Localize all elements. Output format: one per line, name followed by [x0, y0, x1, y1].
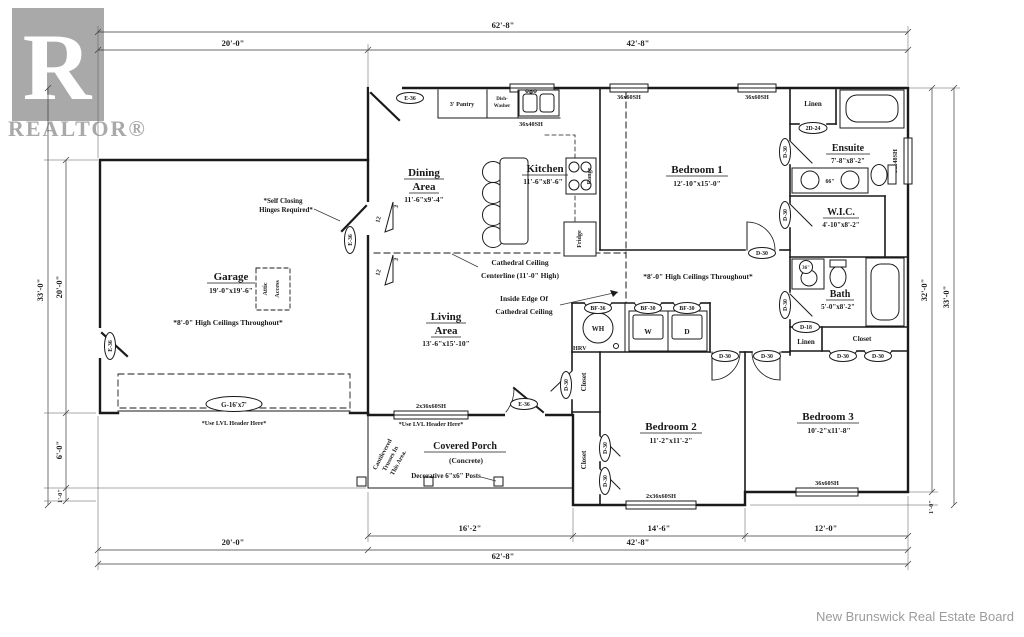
svg-text:E-36: E-36	[108, 340, 114, 352]
cathedral-note2: Centerline (11'-0" High)	[481, 271, 559, 280]
svg-text:BF-30: BF-30	[640, 306, 655, 312]
window-bedroom2	[626, 501, 696, 509]
water-heater-label: WH	[592, 325, 605, 333]
window-label: 2x36x60SH	[416, 403, 446, 410]
door-marker-bf36: BF-36	[585, 303, 612, 314]
linen-label: Linen	[797, 338, 815, 346]
window-label: 36x40SH	[519, 121, 543, 128]
window-bedroom1-b	[738, 84, 776, 92]
self-closing-note2: Hinges Required*	[259, 206, 313, 214]
svg-text:BF-36: BF-36	[590, 306, 605, 312]
bath-door-leaf	[790, 294, 812, 316]
svg-text:D-30: D-30	[783, 299, 789, 311]
vanity-36-label: 36"	[802, 266, 810, 271]
door-marker-d30: D-30	[600, 468, 611, 495]
ceiling-lines	[118, 92, 626, 408]
window-ensuite	[904, 138, 912, 184]
ensuite-size: 7'-8"x8'-2"	[831, 157, 865, 165]
slope-rise: 12	[374, 216, 382, 224]
board-credit: New Brunswick Real Estate Board	[816, 609, 1014, 624]
ensuite-sink	[801, 171, 819, 189]
inside-edge-note2: Cathedral Ceiling	[495, 307, 553, 316]
svg-text:E-36: E-36	[518, 402, 530, 408]
window-label: 36x60SH	[815, 480, 839, 487]
closet-label: Closet	[580, 450, 588, 469]
dim-height-outer-right: 33'-0"	[941, 286, 951, 309]
window-label: 36x60SH	[617, 94, 641, 101]
inside-edge-note: Inside Edge Of	[500, 294, 548, 303]
realtor-logo-r: R	[23, 14, 93, 120]
dim-step-left: 1'-0"	[57, 489, 64, 503]
bath-size: 5'-0"x8'-2"	[821, 303, 855, 311]
closet-label: Closet	[580, 372, 588, 391]
realtor-wordmark: REALTOR®	[8, 116, 147, 141]
bath-toilet	[830, 267, 846, 288]
dining-size: 11'-6"x9'-4"	[404, 195, 444, 204]
floor-plan-drawing: R REALTOR®	[0, 0, 1024, 637]
attic-access-label: Attic	[262, 282, 269, 295]
svg-text:BF-30: BF-30	[679, 306, 694, 312]
door-marker-d30: D-30	[865, 351, 892, 362]
door-marker-d30: D-30	[712, 351, 739, 362]
slope-markers: 12 3 12 3	[374, 202, 400, 285]
door-marker-d30: D-30	[780, 202, 791, 229]
dim-b3: 12'-0"	[815, 523, 838, 533]
door-marker-d30: D-30	[780, 139, 791, 166]
svg-text:D-30: D-30	[603, 442, 609, 454]
range-label: Range	[586, 167, 593, 184]
dim-right-bottom: 42'-8"	[627, 537, 650, 547]
ensuite-door-leaf	[790, 141, 812, 163]
bath-label: Bath	[830, 289, 851, 300]
svg-text:D-30: D-30	[564, 379, 570, 391]
garage-size: 19'-0"x19'-6"	[209, 286, 253, 295]
porch-sub-label: (Concrete)	[449, 456, 484, 465]
dim-overall-top: 62'-8"	[492, 20, 515, 30]
porch-post	[494, 477, 503, 486]
lvl-header-note: *Use LVL Header Here*	[202, 420, 267, 427]
bath-tub	[866, 258, 904, 326]
linen-label: Linen	[804, 100, 822, 108]
living-label2: Area	[434, 325, 458, 337]
svg-text:D-30: D-30	[783, 146, 789, 158]
window-living	[394, 411, 468, 419]
kitchen-island	[500, 158, 528, 244]
lvl-header-note: *Use LVL Header Here*	[399, 421, 464, 428]
ensuite-toilet	[871, 165, 887, 186]
exterior-door-gaps	[96, 84, 545, 419]
svg-text:D-30: D-30	[761, 354, 773, 360]
door-marker-e36: E-36	[397, 93, 424, 104]
hrv-label: HRV	[573, 345, 587, 352]
door-marker-d30: D-30	[830, 351, 857, 362]
washer-label: W	[644, 327, 652, 336]
garage-house-door-leaf	[342, 206, 366, 231]
door-marker-2d24: 2D-24	[799, 123, 827, 134]
svg-text:E-36: E-36	[348, 234, 354, 246]
dim-left-top: 20'-0"	[222, 38, 245, 48]
door-marker-d18: D-18	[793, 322, 820, 333]
bedroom2-size: 11'-2"x11'-2"	[650, 436, 693, 445]
realtor-logo: R REALTOR®	[8, 8, 147, 141]
kitchen-label: Kitchen	[526, 163, 563, 175]
closet-label: Closet	[853, 335, 872, 343]
dim-b2: 14'-6"	[648, 523, 671, 533]
dim-left-bottom: 20'-0"	[222, 537, 245, 547]
living-label: Living	[431, 311, 462, 323]
svg-text:D-18: D-18	[800, 325, 812, 331]
wic-door-leaf	[790, 204, 812, 226]
svg-text:D-30: D-30	[872, 354, 884, 360]
ensuite-label: Ensuite	[832, 143, 865, 154]
dim-garage-height: 20'-0"	[54, 276, 64, 299]
wic-label: W.I.C.	[827, 207, 855, 218]
kitchen-size: 11'-6"x8'-6"	[523, 177, 563, 186]
fridge-label: Fridge	[576, 230, 583, 248]
svg-text:D-30: D-30	[603, 475, 609, 487]
porch-label: Covered Porch	[433, 441, 497, 452]
high-ceilings-note-hall: *8'-0" High Ceilings Throughout*	[643, 272, 753, 281]
hrv-unit	[614, 344, 619, 349]
slope-rise: 12	[374, 269, 382, 277]
door-marker-bf30: BF-30	[674, 303, 701, 314]
window-label: 2x36x60SH	[646, 493, 676, 500]
door-marker-e36: E-36	[105, 333, 116, 360]
dining-label2: Area	[412, 181, 436, 193]
back-door-leaf	[371, 93, 399, 120]
door-marker-bf30: BF-30	[635, 303, 662, 314]
decorative-posts-note: Decorative 6"x6" Posts	[411, 472, 481, 480]
door-marker-e36: E-36	[345, 227, 356, 254]
dim-height-inner-right: 32'-0"	[919, 279, 929, 302]
window-bedroom1-a	[610, 84, 648, 92]
door-marker-d30: D-30	[754, 351, 781, 362]
door-marker-e36: E-36	[511, 399, 538, 410]
door-marker-d30: D-30	[600, 435, 611, 462]
bedroom3-label: Bedroom 3	[802, 411, 854, 423]
self-closing-note: *Self Closing	[263, 197, 303, 205]
living-size: 13'-6"x15'-10"	[422, 339, 470, 348]
svg-text:D-30: D-30	[719, 354, 731, 360]
dishwasher-label: Dish-	[496, 97, 508, 102]
dining-label: Dining	[408, 167, 440, 179]
svg-text:2D-24: 2D-24	[806, 126, 821, 132]
svg-text:D-30: D-30	[837, 354, 849, 360]
bedroom2-label: Bedroom 2	[645, 421, 697, 433]
door-marker-d30: D-30	[780, 292, 791, 319]
porch-post	[357, 477, 366, 486]
vanity-66-label: 66"	[825, 179, 834, 185]
slope-run: 3	[393, 204, 401, 209]
floor-plan-page: R REALTOR®	[0, 0, 1024, 637]
svg-text:G-16'x7': G-16'x7'	[221, 401, 247, 409]
dryer-label: D	[684, 327, 690, 336]
window-label: 36x60SH	[745, 94, 769, 101]
bedroom1-size: 12'-10"x15'-0"	[673, 179, 721, 188]
cantilevered-note: Cantilevered Trusses In This Area.	[372, 437, 410, 479]
dim-step-right: 1'-0"	[928, 500, 935, 514]
pantry-label: 3' Pantry	[450, 101, 475, 108]
dim-height-outer-left: 33'-0"	[35, 279, 45, 302]
bedroom1-label: Bedroom 1	[671, 164, 722, 176]
window-bedroom3	[796, 488, 858, 496]
svg-text:E-36: E-36	[404, 96, 416, 102]
wic-size: 4'-10"x8'-2"	[822, 221, 859, 229]
slope-run: 3	[393, 257, 401, 262]
bedroom3-size: 10'-2"x11'-8"	[807, 426, 850, 435]
garage-door-marker: G-16'x7'	[206, 397, 262, 412]
garage-label: Garage	[214, 271, 249, 283]
ensuite-sink	[841, 171, 859, 189]
dishwasher-label2: Washer	[494, 104, 511, 109]
attic-access-label2: Access	[274, 280, 281, 298]
dim-right-top: 42'-8"	[627, 38, 650, 48]
cathedral-note: Cathedral Ceiling	[491, 258, 549, 267]
dim-b1: 16'-2"	[459, 523, 482, 533]
dim-porch-height: 6'-0"	[54, 441, 64, 459]
door-marker-d30: D-30	[561, 372, 572, 399]
door-marker-d30: D-30	[749, 248, 776, 259]
svg-text:D-30: D-30	[783, 209, 789, 221]
dim-overall-bottom: 62'-8"	[492, 551, 515, 561]
svg-text:D-30: D-30	[756, 251, 768, 257]
high-ceilings-note-garage: *8'-0" High Ceilings Throughout*	[173, 318, 283, 327]
